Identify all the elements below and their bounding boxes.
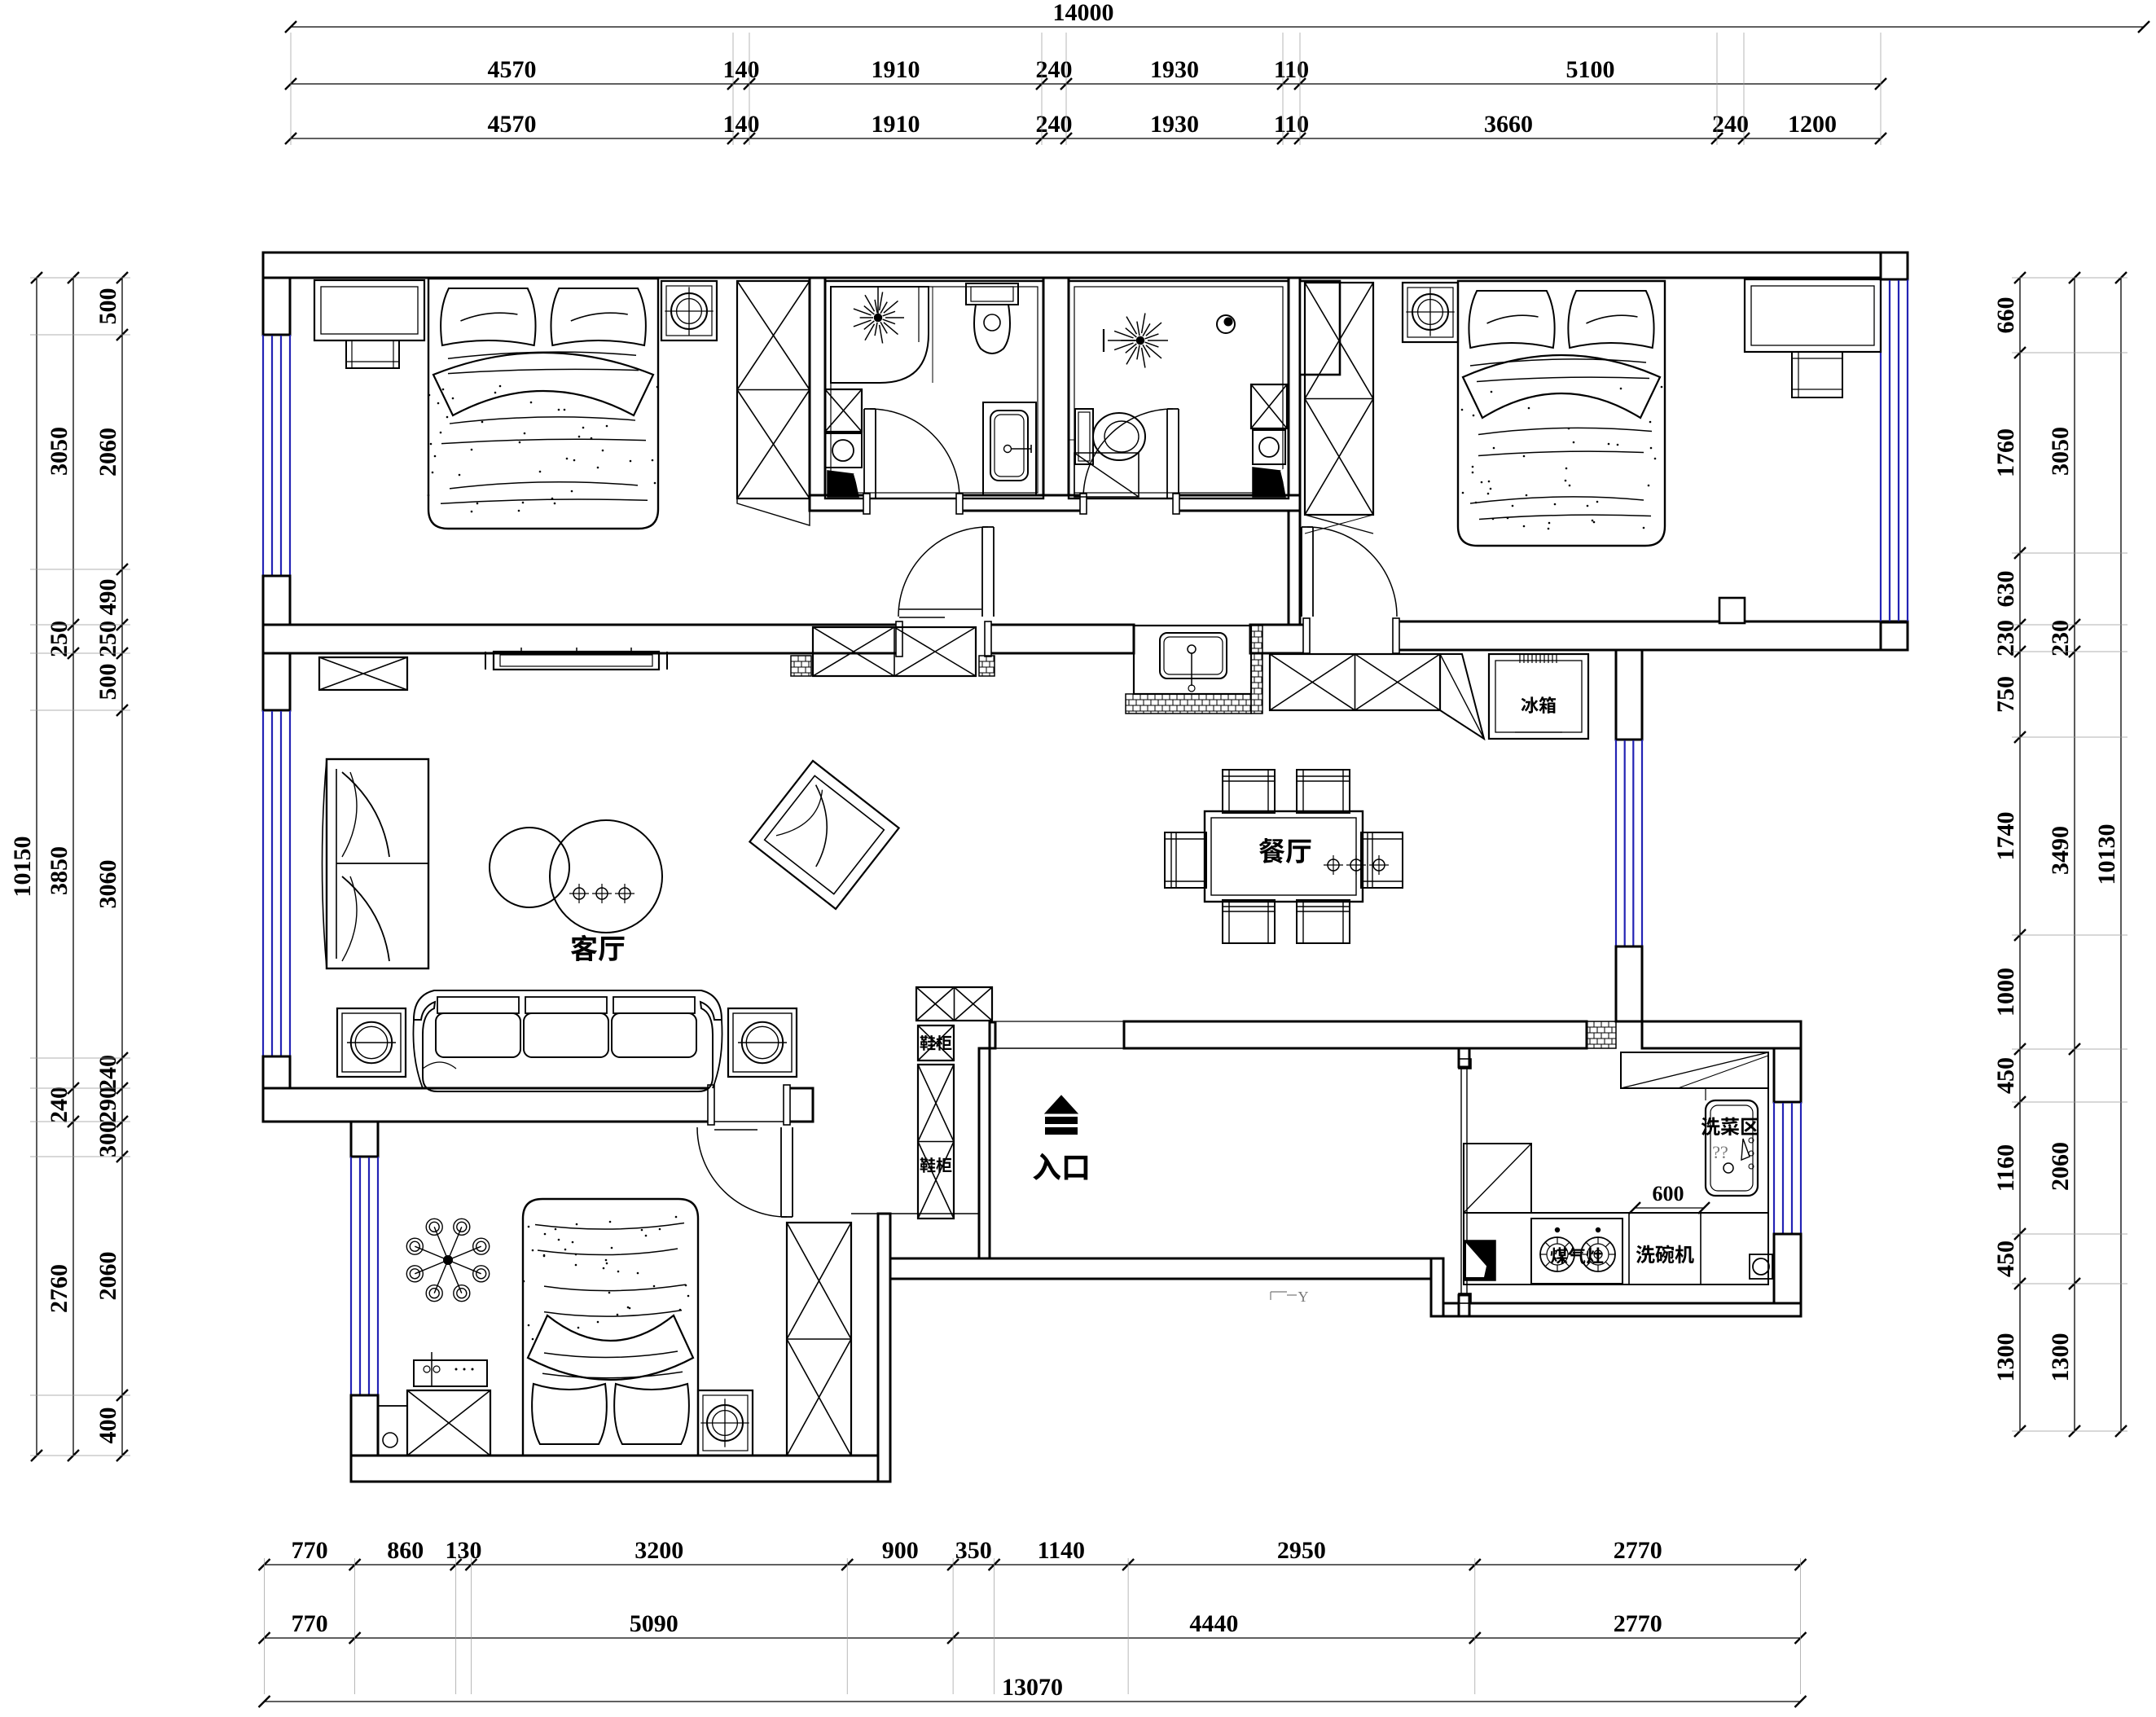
svg-text:140: 140: [723, 56, 760, 83]
svg-text:110: 110: [1274, 111, 1309, 138]
svg-text:2060: 2060: [94, 1252, 121, 1301]
svg-text:13070: 13070: [1002, 1674, 1063, 1701]
svg-text:??: ??: [1712, 1142, 1728, 1162]
svg-text:230: 230: [1992, 620, 2019, 656]
svg-text:4440: 4440: [1189, 1610, 1238, 1637]
svg-text:1300: 1300: [2047, 1333, 2074, 1382]
svg-text:240: 240: [94, 1055, 121, 1091]
svg-text:1930: 1930: [1150, 111, 1199, 138]
svg-text:900: 900: [882, 1537, 919, 1564]
svg-text:250: 250: [94, 621, 121, 657]
svg-text:10150: 10150: [9, 837, 36, 898]
svg-text:630: 630: [1992, 571, 2019, 608]
svg-text:3060: 3060: [94, 860, 121, 909]
svg-text:2770: 2770: [1614, 1610, 1662, 1637]
svg-text:660: 660: [1992, 297, 2019, 334]
svg-text:4570: 4570: [488, 56, 537, 83]
svg-text:3850: 3850: [46, 846, 72, 895]
svg-text:1910: 1910: [872, 56, 920, 83]
svg-text:2950: 2950: [1277, 1537, 1326, 1564]
svg-text:5100: 5100: [1566, 56, 1615, 83]
svg-text:10130: 10130: [2093, 824, 2120, 885]
svg-text:250: 250: [46, 621, 72, 657]
svg-text:1140: 1140: [1038, 1537, 1085, 1564]
svg-text:1740: 1740: [1992, 812, 2019, 861]
svg-text:490: 490: [94, 579, 121, 616]
svg-text:230: 230: [2047, 620, 2074, 656]
svg-text:2060: 2060: [2047, 1142, 2074, 1191]
svg-text:240: 240: [1036, 56, 1073, 83]
svg-text:2770: 2770: [1614, 1537, 1662, 1564]
svg-text:600: 600: [1653, 1182, 1684, 1205]
svg-text:770: 770: [292, 1537, 328, 1564]
svg-text:14000: 14000: [1053, 0, 1114, 26]
svg-text:3200: 3200: [635, 1537, 683, 1564]
svg-text:5090: 5090: [630, 1610, 678, 1637]
svg-text:3490: 3490: [2047, 826, 2074, 875]
svg-text:1300: 1300: [1992, 1333, 2019, 1382]
svg-text:140: 140: [723, 111, 760, 138]
svg-text:500: 500: [94, 664, 121, 700]
svg-text:3050: 3050: [2047, 427, 2074, 476]
svg-text:1760: 1760: [1992, 428, 2019, 477]
svg-text:240: 240: [1712, 111, 1749, 138]
svg-text:300: 300: [94, 1121, 121, 1157]
svg-text:400: 400: [94, 1407, 121, 1444]
svg-text:450: 450: [1992, 1241, 2019, 1277]
svg-text:3050: 3050: [46, 427, 72, 476]
svg-text:4570: 4570: [488, 111, 537, 138]
svg-text:750: 750: [1992, 676, 2019, 713]
svg-text:3660: 3660: [1484, 111, 1533, 138]
svg-text:130: 130: [446, 1537, 482, 1564]
svg-text:240: 240: [1036, 111, 1073, 138]
svg-text:1930: 1930: [1150, 56, 1199, 83]
svg-text:Y: Y: [1298, 1289, 1309, 1305]
svg-text:1910: 1910: [872, 111, 920, 138]
svg-text:860: 860: [387, 1537, 424, 1564]
svg-text:2760: 2760: [46, 1264, 72, 1313]
svg-text:1000: 1000: [1992, 968, 2019, 1017]
svg-text:350: 350: [955, 1537, 992, 1564]
svg-text:1200: 1200: [1788, 111, 1837, 138]
svg-text:2060: 2060: [94, 428, 121, 476]
svg-text:290: 290: [94, 1087, 121, 1123]
svg-text:770: 770: [292, 1610, 328, 1637]
svg-text:500: 500: [94, 288, 121, 325]
svg-text:450: 450: [1992, 1057, 2019, 1094]
svg-text:240: 240: [46, 1087, 72, 1123]
svg-text:110: 110: [1274, 56, 1309, 83]
svg-text:1160: 1160: [1992, 1144, 2019, 1192]
